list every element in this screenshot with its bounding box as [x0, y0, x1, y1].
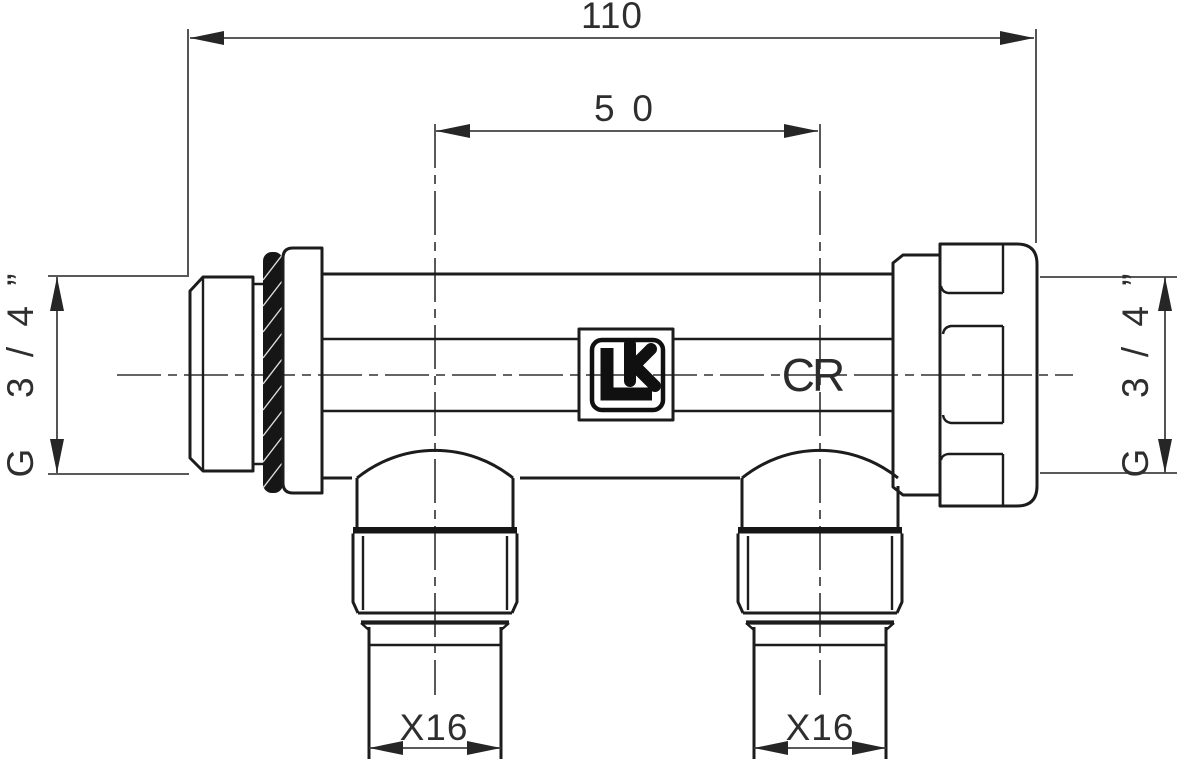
seal-washer	[263, 252, 283, 493]
body-marking-cr: CR	[782, 349, 844, 401]
right-outlet-hex-top-band	[738, 527, 902, 534]
nut-facet-line-2	[943, 326, 1003, 334]
arrowhead-up	[1158, 277, 1172, 311]
technical-drawing-canvas: LK CR 110 50 G 3/4” G 3/4”	[0, 0, 1181, 759]
arrowhead-right	[467, 741, 501, 755]
dim-outlet-spacing: 50	[436, 88, 818, 138]
dim-overall-length: 110	[188, 0, 1036, 275]
arrowhead-left	[369, 741, 403, 755]
manifold-technical-drawing: LK CR 110 50 G 3/4” G 3/4”	[0, 0, 1181, 759]
arrowhead-down	[50, 439, 64, 473]
seal-washer-body	[263, 252, 283, 493]
dimension-label-thread-left: G 3/4”	[0, 273, 41, 478]
left-outlet-hex-top-band	[353, 527, 517, 534]
arrowhead-right	[1000, 31, 1034, 45]
dimension-label-110: 110	[581, 0, 643, 36]
arrowhead-left	[436, 124, 470, 138]
arrowhead-right	[852, 741, 886, 755]
nut-facet-line-4	[941, 454, 1003, 460]
dimension-label-x16-left: X16	[400, 707, 469, 748]
arrowhead-down	[1158, 439, 1172, 473]
left-collar	[283, 248, 322, 493]
arrowhead-left	[190, 31, 224, 45]
dim-tube-right: X16	[754, 707, 886, 755]
arrowhead-up	[50, 277, 64, 311]
logo-letter-k-leg	[638, 369, 655, 386]
arrowhead-right	[784, 124, 818, 138]
dimension-label-thread-right: G 3/4”	[1115, 273, 1156, 478]
dim-tube-left: X16	[369, 707, 501, 755]
logo-letter-k-arm	[635, 349, 651, 365]
arrowhead-left	[754, 741, 788, 755]
left-collar-outline	[283, 248, 322, 493]
nut-facet-line-3	[943, 415, 1003, 423]
left-end-plug	[190, 277, 263, 471]
dimension-label-x16-right: X16	[786, 707, 855, 748]
nut-facet-line-1	[941, 286, 1003, 293]
dimension-label-50: 50	[594, 88, 654, 129]
male-thread-plug-outline	[190, 277, 253, 471]
